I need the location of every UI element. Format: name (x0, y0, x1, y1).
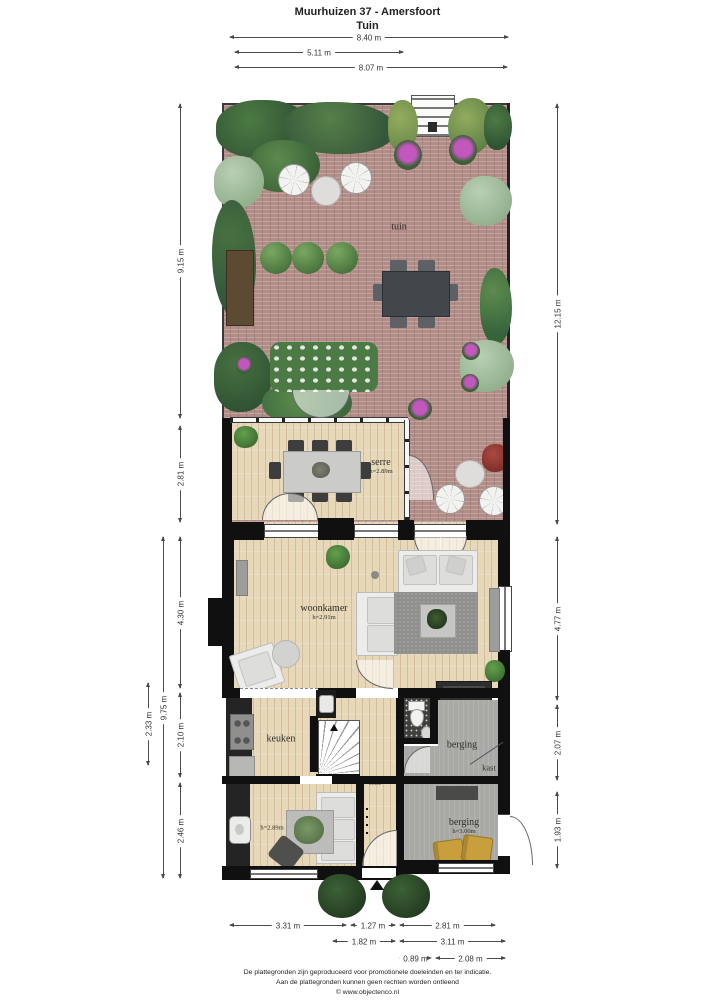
flower-purple (461, 374, 479, 392)
dim-bottom-182: 1.82 m (333, 941, 395, 942)
wall (398, 688, 510, 698)
washbasin (229, 816, 251, 844)
wall (466, 520, 510, 540)
window (498, 586, 512, 652)
wall (222, 522, 264, 540)
wall-right (498, 782, 510, 814)
page-subtitle: Tuin (14, 20, 707, 32)
footer-line-2: Aan de plattegronden kunnen geen rechten… (14, 978, 707, 988)
window (354, 524, 400, 538)
room-label-kast: kast (482, 763, 496, 772)
dim-left-915: 9.15 m (180, 104, 181, 418)
dim-left-430: 4.30 m (180, 537, 181, 688)
garden-chair (390, 316, 407, 328)
wall (222, 776, 300, 784)
door-opening (300, 776, 332, 784)
window (438, 863, 494, 873)
exterior-door-arc (510, 816, 533, 865)
tree (382, 874, 430, 918)
room-label-woonkamer: woonkamer h=2.91m (300, 603, 347, 621)
dim-left-233: 2.33 m (148, 683, 149, 765)
window (250, 869, 318, 879)
footer-line-3: © www.objectenco.nl (14, 988, 707, 998)
dot (366, 816, 368, 818)
garden-table (382, 271, 450, 317)
dim-right-207: 2.07 m (557, 705, 558, 780)
front-door-opening (362, 868, 396, 878)
room-label-keuken: keuken (267, 734, 296, 745)
page-title: Muurhuizen 37 - Amersfoort (14, 6, 707, 18)
radiator (236, 560, 248, 596)
dim-bottom-281: 2.81 m (400, 925, 495, 926)
bush (480, 268, 512, 344)
sofa (356, 592, 398, 656)
dim-bottom-208: 2.08 m (436, 958, 505, 959)
flower-purple (462, 342, 480, 360)
radiator (489, 588, 500, 652)
flower-purple (394, 140, 422, 170)
bottom-room-height-label: h=2.89m (260, 824, 283, 831)
wall (396, 698, 404, 876)
stair-wall (310, 716, 318, 772)
dot (366, 824, 368, 826)
door-opening (264, 524, 320, 538)
ball-bush (260, 242, 292, 274)
room-label-tuin: tuin (391, 222, 407, 233)
wall-right (498, 690, 510, 782)
dim-top-2: 5.11 m (235, 52, 403, 53)
dim-bottom-331: 3.31 m (230, 925, 346, 926)
chair (269, 462, 281, 479)
doormat (436, 786, 478, 800)
dim-left-210: 2.10 m (180, 693, 181, 777)
footer-line-1: De plattegronden zijn geproduceerd voor … (14, 968, 707, 978)
gate-post (428, 122, 437, 132)
dot (366, 808, 368, 810)
room-label-berging-bottom: berging h=3.00m (449, 817, 479, 835)
wall (398, 520, 414, 540)
wall-notch (208, 598, 224, 646)
flower-purple (408, 398, 432, 420)
room-label-berging-top: berging (447, 740, 477, 751)
stairs-up-arrow-icon (330, 724, 338, 731)
round-table (455, 460, 485, 488)
dim-right-477: 4.77 m (557, 537, 558, 700)
sofa (398, 550, 478, 596)
stove (230, 714, 254, 750)
dim-bottom-127: 1.27 m (351, 925, 395, 926)
door-opening (356, 688, 398, 698)
dim-right-193: 1.93 m (557, 792, 558, 868)
dim-left-975: 9.75 m (163, 537, 164, 878)
room-label-serre: serre h=2.89m (369, 457, 392, 475)
dim-top-3: 8.07 m (235, 67, 507, 68)
floorplan-page: Muurhuizen 37 - Amersfoort Tuin 8.40 m 5… (0, 0, 707, 1000)
kitchen-sink-unit (316, 690, 336, 718)
ball-bush (292, 242, 324, 274)
dim-left-281: 2.81 m (180, 426, 181, 522)
garden-planter (226, 250, 254, 326)
flower-purple (236, 356, 252, 374)
footer-disclaimer: De plattegronden zijn geproduceerd voor … (14, 968, 707, 998)
wire-dome (278, 164, 310, 196)
dim-bottom-089: 0.89 m (400, 958, 431, 959)
staircase (318, 720, 360, 776)
patio-wall-right (503, 418, 510, 522)
hydrangea-hedge (270, 342, 378, 392)
dim-bottom-311: 3.11 m (400, 941, 505, 942)
dim-top-1: 8.40 m (230, 37, 508, 38)
floor-dot (371, 571, 379, 579)
wire-dome (435, 484, 465, 514)
tree (318, 874, 366, 918)
wire-dome (340, 162, 372, 194)
flower-purple (449, 135, 477, 165)
entrance-arrow-icon (370, 880, 384, 890)
wall-right (498, 540, 510, 586)
side-table (272, 640, 300, 668)
garden-chair (418, 316, 435, 328)
wall (332, 776, 510, 784)
round-table (311, 176, 341, 206)
dot (366, 832, 368, 834)
ball-bush (326, 242, 358, 274)
wall (318, 518, 354, 540)
serre-wall-left (222, 418, 232, 522)
dim-right-1215: 12.15 m (557, 104, 558, 524)
wall (222, 688, 240, 698)
dim-left-246: 2.46 m (180, 783, 181, 878)
